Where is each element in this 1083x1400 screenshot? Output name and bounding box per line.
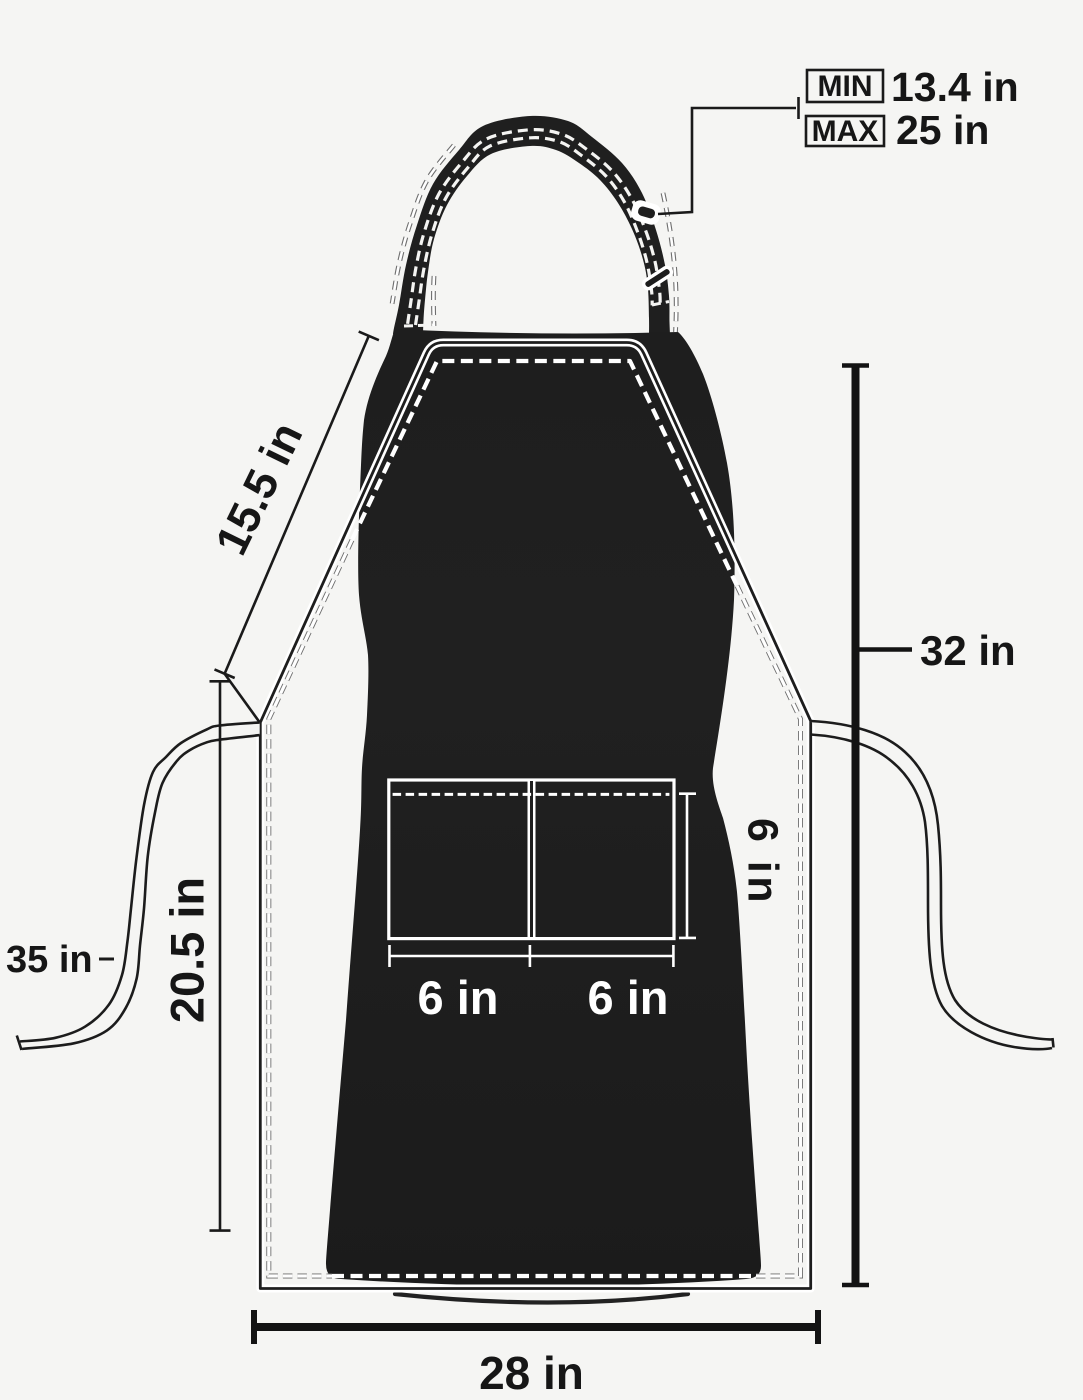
svg-text:6 in: 6 in (418, 971, 499, 1024)
svg-text:6 in: 6 in (588, 971, 669, 1024)
svg-text:25 in: 25 in (896, 107, 989, 153)
svg-text:28 in: 28 in (479, 1347, 584, 1399)
svg-text:MIN: MIN (818, 70, 873, 103)
svg-text:13.4 in: 13.4 in (891, 64, 1019, 110)
svg-text:32 in: 32 in (920, 627, 1016, 674)
svg-text:20.5 in: 20.5 in (160, 877, 213, 1023)
svg-text:35 in: 35 in (6, 939, 93, 981)
svg-text:6 in: 6 in (739, 818, 787, 906)
svg-text:MAX: MAX (812, 115, 879, 148)
